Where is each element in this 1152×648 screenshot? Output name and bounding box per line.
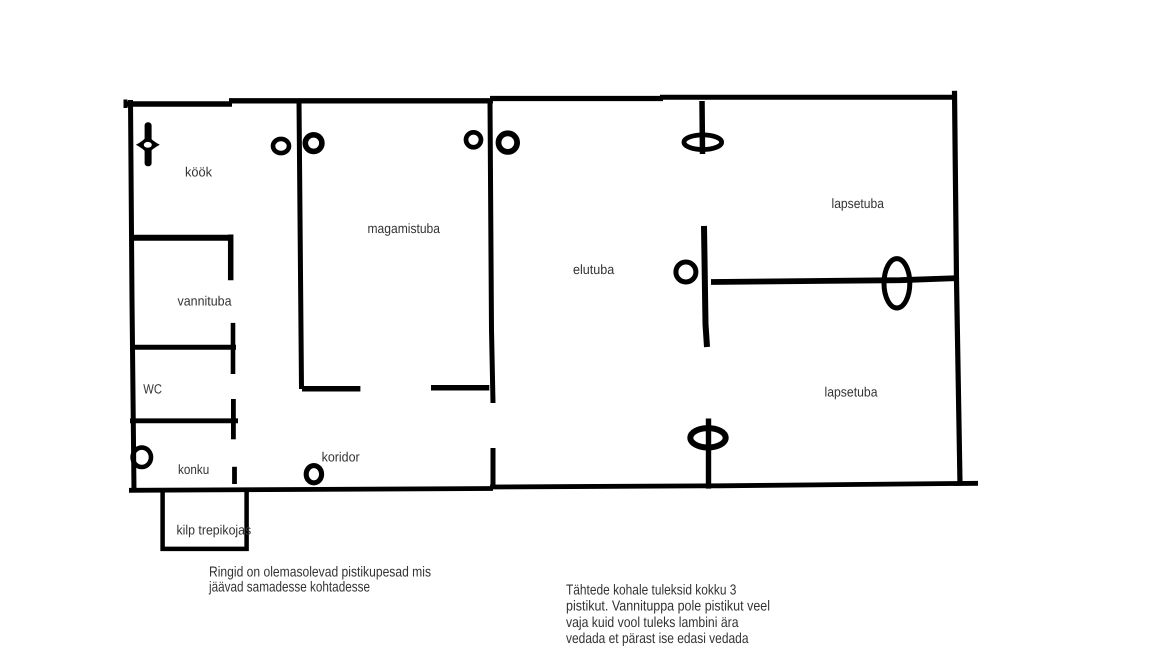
svg-text:lapsetuba: lapsetuba bbox=[825, 385, 878, 400]
svg-text:pistikut. Vannituppa pole pist: pistikut. Vannituppa pole pistikut veel bbox=[566, 599, 770, 615]
svg-text:lapsetuba: lapsetuba bbox=[832, 196, 885, 211]
svg-text:kilp trepikojas: kilp trepikojas bbox=[177, 522, 252, 537]
svg-text:koridor: koridor bbox=[322, 450, 361, 465]
svg-text:jäävad samadesse kohtadesse: jäävad samadesse kohtadesse bbox=[208, 579, 370, 595]
svg-text:konku: konku bbox=[178, 462, 209, 477]
svg-text:vaja kuid vool tuleks lambini: vaja kuid vool tuleks lambini ära bbox=[566, 615, 739, 631]
svg-text:vedada et pärast ise edasi ved: vedada et pärast ise edasi vedada bbox=[566, 631, 749, 647]
svg-text:elutuba: elutuba bbox=[573, 262, 615, 277]
svg-text:Tähtede kohale tuleksid kokku: Tähtede kohale tuleksid kokku 3 bbox=[566, 582, 736, 598]
svg-text:Ringid on olemasolevad pistiku: Ringid on olemasolevad pistikupesad mis bbox=[209, 564, 431, 580]
svg-text:WC: WC bbox=[143, 382, 162, 397]
svg-text:köök: köök bbox=[185, 165, 212, 180]
svg-text:magamistuba: magamistuba bbox=[368, 221, 441, 236]
svg-text:vannituba: vannituba bbox=[178, 294, 232, 309]
